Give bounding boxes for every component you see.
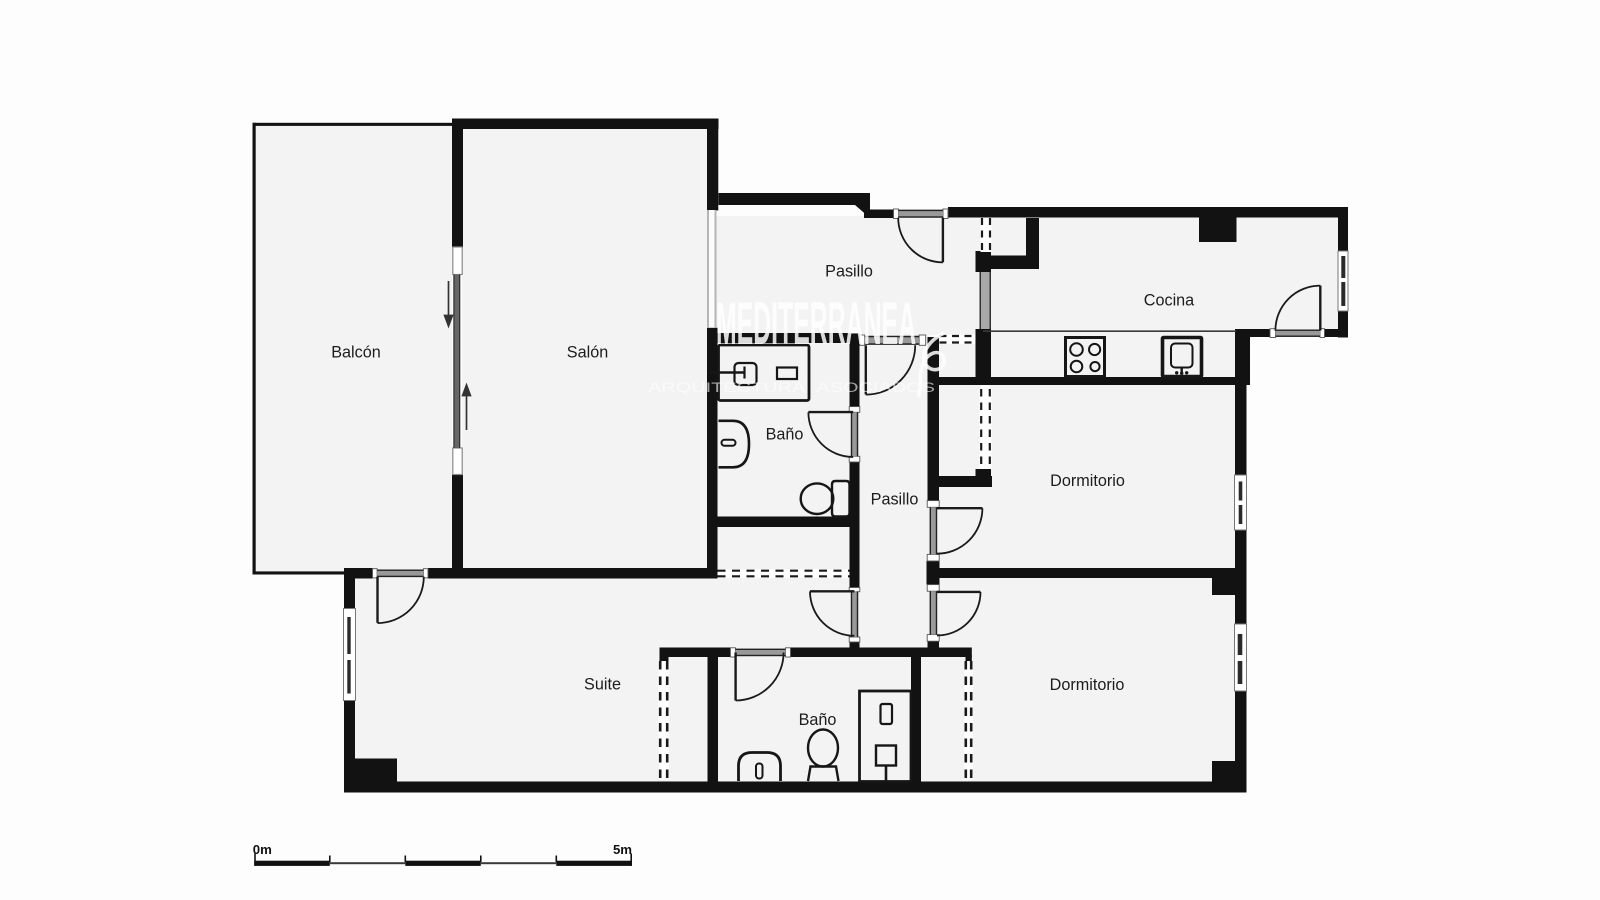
svg-text:Pasillo: Pasillo bbox=[871, 491, 919, 509]
svg-text:MEDITERRANEA: MEDITERRANEA bbox=[716, 290, 916, 357]
svg-text:0m: 0m bbox=[253, 842, 272, 857]
svg-text:ARQUITECTURA ASOCIADOS: ARQUITECTURA ASOCIADOS bbox=[648, 380, 935, 395]
svg-text:Pasillo: Pasillo bbox=[825, 263, 873, 281]
svg-text:5m: 5m bbox=[613, 842, 632, 857]
svg-text:Cocina: Cocina bbox=[1144, 292, 1194, 310]
svg-text:Balcón: Balcón bbox=[331, 344, 381, 362]
svg-text:Baño: Baño bbox=[799, 711, 837, 729]
svg-text:Baño: Baño bbox=[766, 426, 804, 444]
svg-text:Dormitorio: Dormitorio bbox=[1050, 676, 1125, 694]
svg-text:Suite: Suite bbox=[584, 676, 621, 694]
svg-text:Salón: Salón bbox=[567, 344, 608, 362]
svg-text:Dormitorio: Dormitorio bbox=[1050, 472, 1125, 490]
